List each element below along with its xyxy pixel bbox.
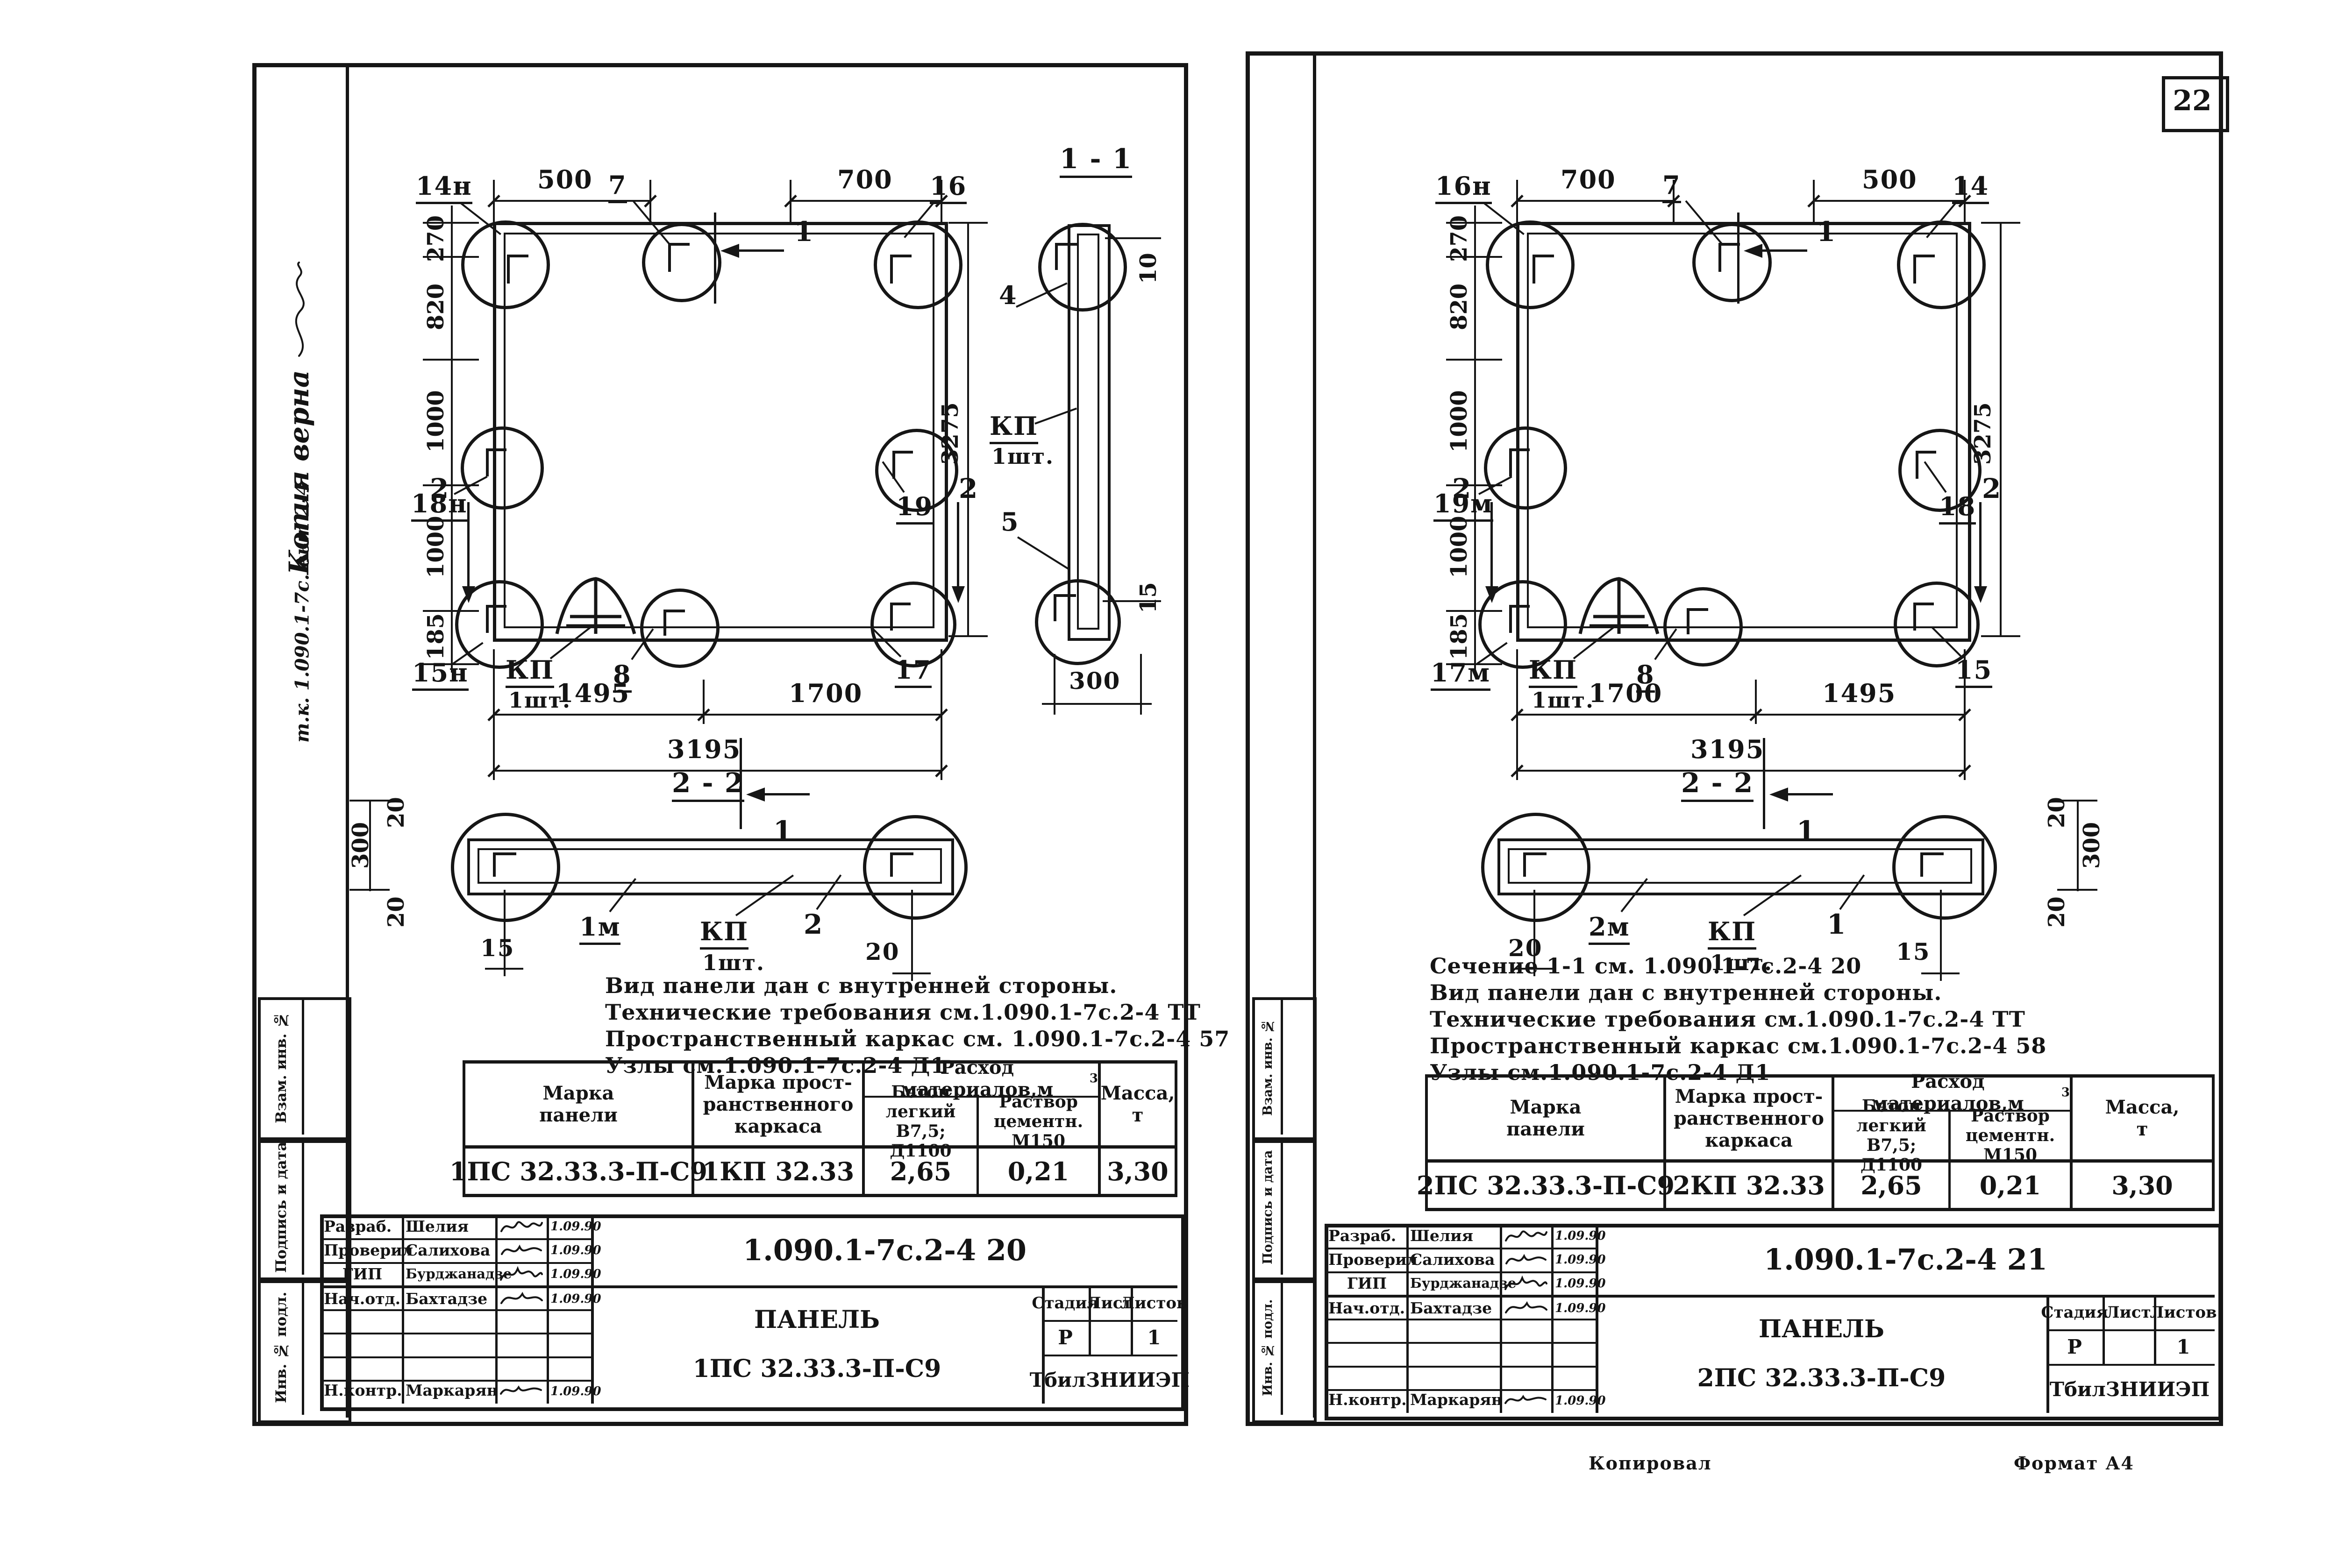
joint-profile-glyph <box>1523 852 1547 877</box>
tb-date: 1.09.90 <box>550 1381 590 1402</box>
detail-label-kp: КП <box>700 916 748 950</box>
table-border <box>2212 1074 2215 1211</box>
dimension-line <box>2000 222 2002 635</box>
tb-stage-header: Стадия <box>2047 1297 2102 1328</box>
tb-role: Нач.отд. <box>1328 1298 1405 1319</box>
extension-line <box>504 890 506 976</box>
detail-label: 19м <box>1433 489 1493 522</box>
titleblock-line <box>320 1356 591 1358</box>
dimension-text: 300 <box>347 810 375 880</box>
lifting-loop-detail <box>1575 572 1663 638</box>
signature-icon <box>499 1264 543 1284</box>
dimension-text: 20 <box>865 938 900 965</box>
detail-label-kp: КП <box>1529 655 1577 688</box>
dimension-line <box>451 206 453 673</box>
extension-line <box>1755 680 1757 724</box>
dimension-text: 3195 <box>667 734 741 764</box>
table-cell-mark: 2ПС 32.33.3-П-С9 <box>1428 1163 1663 1208</box>
detail-label: 18 <box>1939 491 1976 525</box>
section-cut-line <box>467 502 470 586</box>
joint-profile-glyph <box>1913 603 1934 631</box>
signature-icon <box>1504 1298 1548 1317</box>
detail-label-kp: КП <box>506 655 554 688</box>
dimension-line <box>493 200 651 202</box>
section-title: 1 - 1 <box>1060 143 1132 178</box>
detail-label: 2 <box>804 908 823 940</box>
dim-tick-line <box>485 968 523 970</box>
stamp-box-vzam: Взам. инв. № <box>1252 997 1317 1143</box>
dimension-line <box>790 200 942 202</box>
tb-date: 1.09.90 <box>1555 1298 1595 1319</box>
detail-label: 4 <box>999 280 1018 310</box>
tb-sheets-value: 1 <box>1132 1321 1176 1354</box>
tb-name: Шелия <box>1410 1224 1499 1248</box>
detail-label: 1м <box>579 912 620 945</box>
extension-line <box>1054 654 1055 715</box>
detail-label: 19 <box>896 491 933 525</box>
tb-date: 1.09.90 <box>550 1215 590 1238</box>
tb-doc-number: 1.090.1-7с.2-4 20 <box>594 1214 1176 1285</box>
arrow-down-icon <box>1974 586 1987 603</box>
joint-profile-glyph <box>493 852 516 877</box>
table-header-concrete: Бетон легкий В7,5; Д1100 <box>865 1098 977 1145</box>
dimension-line <box>1516 200 1675 202</box>
section-cut-line <box>957 502 959 586</box>
table-cell-mortar: 0,21 <box>979 1149 1098 1194</box>
dim-tick-line <box>948 635 988 637</box>
joint-profile-glyph <box>1509 605 1530 633</box>
note-line: Сечение 1-1 см. 1.090.1-7с.2-4 20 <box>1430 953 2046 979</box>
section-mark-2: 2 <box>959 473 978 504</box>
dimension-text: 820 <box>1445 274 1473 340</box>
stamp-box-podpis: Подпись и дата <box>1252 1137 1317 1283</box>
table-header-mass: Масса, т <box>2073 1077 2212 1159</box>
table-cell-mark: 1ПС 32.33.3-П-С9 <box>465 1149 691 1194</box>
stamp-label: Инв. № подл. <box>1255 1280 1281 1415</box>
detail-label-kp-qty: 1шт. <box>1532 688 1594 713</box>
arrow-down-icon <box>462 586 475 603</box>
detail-label: 16н <box>1435 171 1492 204</box>
titleblock-line <box>320 1309 591 1311</box>
detail-circle <box>1892 815 1997 920</box>
titleblock-line <box>320 1333 591 1334</box>
stamp-box-inv: Инв. № подл. <box>1252 1277 1317 1423</box>
footer-format: Формат А4 <box>2014 1453 2134 1474</box>
signature-icon <box>499 1382 543 1400</box>
signature-icon <box>1504 1273 1548 1293</box>
detail-label: 15н <box>412 658 469 691</box>
joint-profile-glyph <box>1055 243 1077 270</box>
tb-role: ГИП <box>324 1262 401 1285</box>
table-cell-mortar: 0,21 <box>1951 1163 2070 1208</box>
arrow-left-icon <box>720 244 739 258</box>
dimension-text: 10 <box>1134 243 1162 294</box>
section-cut-line <box>714 213 716 304</box>
detail-label: 18н <box>411 489 468 522</box>
table-cell-mass: 3,30 <box>1101 1149 1175 1194</box>
table-header-mortar: Раствор цементн. М150 <box>1951 1112 2070 1159</box>
dim-tick-line <box>2057 889 2097 891</box>
detail-circle <box>1486 220 1575 309</box>
detail-label-kp: КП <box>990 411 1038 444</box>
dimension-text: 20 <box>2043 792 2071 834</box>
table-cell-mass: 3,30 <box>2073 1163 2212 1208</box>
joint-profile-glyph <box>663 610 685 636</box>
joint-profile-glyph <box>1687 608 1708 634</box>
signature-icon <box>499 1217 543 1236</box>
dim-tick-line <box>1105 237 1161 239</box>
detail-circle <box>461 220 550 309</box>
detail-label: 14н <box>416 171 472 204</box>
arrow-left-icon <box>1769 788 1788 802</box>
signature-icon <box>285 261 313 359</box>
tb-stage-header: Стадия <box>1043 1287 1088 1319</box>
tb-name: Бурджанадзе <box>406 1262 494 1285</box>
table-border <box>1425 1208 2215 1211</box>
detail-label-kp: КП <box>1708 916 1756 950</box>
table-header-frame: Марка прост- ранственного каркаса <box>694 1063 862 1145</box>
dimension-text: 3195 <box>1690 734 1764 764</box>
dimension-text: 300 <box>2078 810 2106 880</box>
dimension-text: 15 <box>480 934 515 962</box>
margin-handwriting-ref: т.к. 1.090.1-7с. вып 2-4 <box>277 444 328 743</box>
dim-tick-line <box>349 889 390 891</box>
stamp-box-divider <box>302 1000 304 1135</box>
tb-role: Н.контр. <box>1328 1389 1405 1410</box>
arrow-down-icon <box>952 586 965 603</box>
dim-tick-line <box>948 222 988 224</box>
signature-icon <box>1504 1391 1548 1410</box>
arrow-down-icon <box>1485 586 1498 603</box>
section-title: 2 - 2 <box>1681 767 1754 802</box>
tb-stage-value: Р <box>2047 1330 2102 1363</box>
dimension-text: 1495 <box>1822 678 1896 708</box>
signature-icon <box>499 1241 543 1260</box>
tb-date: 1.09.90 <box>1555 1272 1595 1295</box>
tb-title-mark: 1ПС 32.33.3-П-С9 <box>594 1352 1040 1385</box>
joint-profile-glyph <box>486 448 506 476</box>
note-line: Вид панели дан с внутренней стороны. <box>605 972 1230 999</box>
note-line: Пространственный каркас см. 1.090.1-7с.2… <box>605 1026 1230 1052</box>
table-header-frame: Марка прост- ранственного каркаса <box>1666 1077 1832 1159</box>
table-cell-frame: 1КП 32.33 <box>694 1149 862 1194</box>
dimension-text: 700 <box>837 164 893 194</box>
joint-profile-glyph <box>486 605 506 633</box>
table-header-mark: Марка панели <box>1428 1077 1663 1159</box>
tb-role: ГИП <box>1328 1271 1405 1295</box>
extension-line <box>911 890 913 981</box>
section-title: 2 - 2 <box>672 767 744 802</box>
section-mark-1: 1 <box>794 216 814 248</box>
tb-organization: ТбилЗНИИЭП <box>1043 1357 1176 1403</box>
table-header-mortar: Раствор цементн. М150 <box>979 1098 1098 1145</box>
joint-profile-glyph <box>668 243 690 272</box>
tb-date: 1.09.90 <box>1555 1249 1595 1271</box>
tb-role: Разраб. <box>324 1214 401 1238</box>
joint-profile-glyph <box>1913 255 1935 284</box>
stamp-label: Инв. № подл. <box>261 1280 302 1415</box>
table-border <box>1175 1060 1177 1197</box>
titleblock-line <box>2046 1364 2215 1366</box>
lifting-loop-detail <box>551 572 640 638</box>
stamp-label: Подпись и дата <box>261 1140 302 1275</box>
titleblock-line <box>1325 1342 1596 1344</box>
table-header-mass: Масса, т <box>1101 1063 1175 1145</box>
dimension-text: 20 <box>382 792 410 834</box>
tb-sheet-header: Лист <box>2103 1297 2153 1328</box>
section-cut-line <box>1979 502 1982 586</box>
tb-name: Салихова <box>406 1238 494 1262</box>
dimension-text: 3275 <box>936 391 964 475</box>
dimension-text: 500 <box>537 164 593 194</box>
stamp-box-divider <box>302 1280 304 1415</box>
dimension-line <box>1516 714 1966 716</box>
dimension-text: 1000 <box>1445 514 1473 580</box>
extension-line <box>1140 654 1142 715</box>
tb-role: Разраб. <box>1328 1224 1405 1248</box>
table-header-mark: Марка панели <box>465 1063 691 1145</box>
stamp-label: Взам. инв. № <box>1255 1000 1281 1135</box>
dim-tick-line <box>1981 635 2020 637</box>
tb-date: 1.09.90 <box>550 1263 590 1285</box>
dimension-line <box>1813 200 1966 202</box>
detail-label: 17м <box>1431 658 1490 691</box>
footer-copied-by: Копировал <box>1589 1453 1712 1474</box>
handwriting-text: т.к. 1.090.1-7с. вып 2-4 <box>292 482 314 743</box>
tb-stage-value: Р <box>1043 1321 1088 1354</box>
detail-circle <box>1038 223 1127 312</box>
detail-circle <box>1035 579 1121 665</box>
signature-icon <box>1504 1250 1548 1269</box>
dimension-text: 500 <box>1862 164 1918 194</box>
tb-role: Проверил <box>1328 1248 1405 1271</box>
note-line: Вид панели дан с внутренней стороны. <box>1430 979 2046 1006</box>
detail-label: 5 <box>1001 507 1019 537</box>
tb-title-word: ПАНЕЛЬ <box>1598 1313 2045 1345</box>
tb-role: Нач.отд. <box>324 1288 401 1309</box>
joint-profile-glyph <box>1509 448 1530 476</box>
tb-name: Маркарян <box>406 1380 494 1401</box>
scanned-drawing-page: 22 Копия верна т.к. 1.090.1-7с. вып 2-4 … <box>0 0 2331 1568</box>
detail-label: 7 <box>608 170 627 203</box>
table-cell-frame: 2КП 32.33 <box>1666 1163 1832 1208</box>
titleblock-line <box>1325 1319 1596 1320</box>
detail-label: 7 <box>1662 170 1681 203</box>
stamp-box-divider <box>1281 1140 1283 1275</box>
table-border <box>1425 1159 2215 1163</box>
detail-label: 1 <box>1827 908 1846 940</box>
dimension-text: 700 <box>1561 164 1616 194</box>
detail-label: 14 <box>1952 171 1989 204</box>
table-cell-concrete: 2,65 <box>865 1149 977 1194</box>
dim-tick-line <box>1981 222 2020 224</box>
stamp-box-vzam: Взам. инв. № <box>258 997 351 1143</box>
detail-label: 16 <box>930 171 967 204</box>
titleblock-line <box>1042 1355 1177 1356</box>
dimension-line <box>493 714 942 716</box>
panel-outline-inner <box>504 233 934 628</box>
detail-circle <box>1897 220 1986 309</box>
note-line: Технические требования см.1.090.1-7с.2-4… <box>1430 1006 2046 1033</box>
dimension-text: 20 <box>2043 891 2071 933</box>
dimension-text: 1000 <box>422 514 450 580</box>
joint-profile-glyph <box>507 255 528 284</box>
tb-date: 1.09.90 <box>550 1288 590 1309</box>
section-mark-1: 1 <box>1817 216 1836 248</box>
detail-label: 17 <box>895 655 932 688</box>
detail-circle <box>863 815 968 920</box>
tb-name: Маркарян <box>1410 1389 1499 1410</box>
signature-icon <box>499 1289 543 1308</box>
detail-circle <box>874 220 962 309</box>
note-line: Технические требования см.1.090.1-7с.2-4… <box>605 999 1230 1026</box>
table-header-concrete: Бетон легкий В7,5; Д1100 <box>1834 1112 1948 1159</box>
extension-line <box>703 680 705 724</box>
stamp-label: Подпись и дата <box>1255 1140 1281 1275</box>
tb-date: 1.09.90 <box>1555 1390 1595 1411</box>
tb-title-word: ПАНЕЛЬ <box>594 1303 1040 1336</box>
dimension-text: 1000 <box>1445 389 1473 454</box>
dimension-text: 1495 <box>556 678 630 708</box>
dimension-text: 15 <box>1134 572 1162 624</box>
stamp-box-divider <box>302 1140 304 1275</box>
joint-profile-glyph <box>890 852 913 877</box>
tb-name: Бахтадзе <box>406 1288 494 1309</box>
signature-icon <box>1504 1227 1548 1245</box>
detail-label-kp-qty: 1шт. <box>991 444 1054 469</box>
joint-profile-glyph <box>890 603 911 631</box>
dimension-text: 1000 <box>422 389 450 454</box>
dimension-line <box>1042 703 1152 705</box>
tb-sheets-value: 1 <box>2155 1330 2212 1363</box>
stamp-box-divider <box>1281 1280 1283 1415</box>
dimension-text: 300 <box>1069 667 1120 695</box>
arrow-left-icon <box>746 788 765 802</box>
dimension-line <box>1474 206 1476 673</box>
tb-name: Бахтадзе <box>1410 1298 1499 1319</box>
tb-date: 1.09.90 <box>550 1239 590 1262</box>
detail-label: 15 <box>1955 655 1992 688</box>
dimension-text: 270 <box>422 206 450 271</box>
section-mark-2: 2 <box>1982 473 2002 504</box>
stamp-label: Взам. инв. № <box>261 1000 302 1135</box>
section-cut-line <box>1737 213 1739 304</box>
stamp-box-divider <box>1281 1000 1283 1135</box>
detail-label-kp-qty: 1шт. <box>702 950 765 975</box>
tb-doc-number: 1.090.1-7с.2-4 21 <box>1598 1224 2213 1295</box>
dim-tick-line <box>1446 359 1502 361</box>
dim-tick-line <box>423 359 479 361</box>
dimension-text: 20 <box>382 891 410 933</box>
tb-sheets-header: Листов <box>1132 1287 1176 1319</box>
table-border <box>463 1194 1177 1197</box>
tb-name: Салихова <box>1410 1248 1499 1271</box>
joint-profile-glyph <box>1054 594 1076 621</box>
joint-profile-glyph <box>1920 852 1944 877</box>
joint-profile-glyph <box>890 255 912 284</box>
dimension-line <box>967 222 969 635</box>
joint-profile-glyph <box>892 451 913 479</box>
tb-name: Шелия <box>406 1214 494 1238</box>
arrow-left-icon <box>1744 244 1762 258</box>
note-line: Пространственный каркас см.1.090.1-7с.2-… <box>1430 1033 2046 1059</box>
tb-sheets-header: Листов <box>2155 1297 2212 1328</box>
dimension-text: 3275 <box>1969 391 1997 475</box>
tb-role: Н.контр. <box>324 1380 401 1401</box>
tb-organization: ТбилЗНИИЭП <box>2047 1366 2212 1412</box>
joint-profile-glyph <box>1533 255 1554 284</box>
tb-date: 1.09.90 <box>1555 1225 1595 1247</box>
tb-name: Бурджанадзе <box>1410 1271 1499 1295</box>
detail-label: 2м <box>1589 912 1630 945</box>
titleblock-line <box>1325 1366 1596 1368</box>
dimension-text: 1700 <box>789 678 863 708</box>
notes-block: Сечение 1-1 см. 1.090.1-7с.2-4 20 Вид па… <box>1430 953 2046 1086</box>
dimension-text: 1700 <box>1589 678 1662 708</box>
tb-title-mark: 2ПС 32.33.3-П-С9 <box>1598 1362 2045 1394</box>
dimension-text: 270 <box>1445 206 1473 271</box>
dimension-text: 820 <box>422 274 450 340</box>
table-cell-concrete: 2,65 <box>1834 1163 1948 1208</box>
tb-role: Проверил <box>324 1238 401 1262</box>
